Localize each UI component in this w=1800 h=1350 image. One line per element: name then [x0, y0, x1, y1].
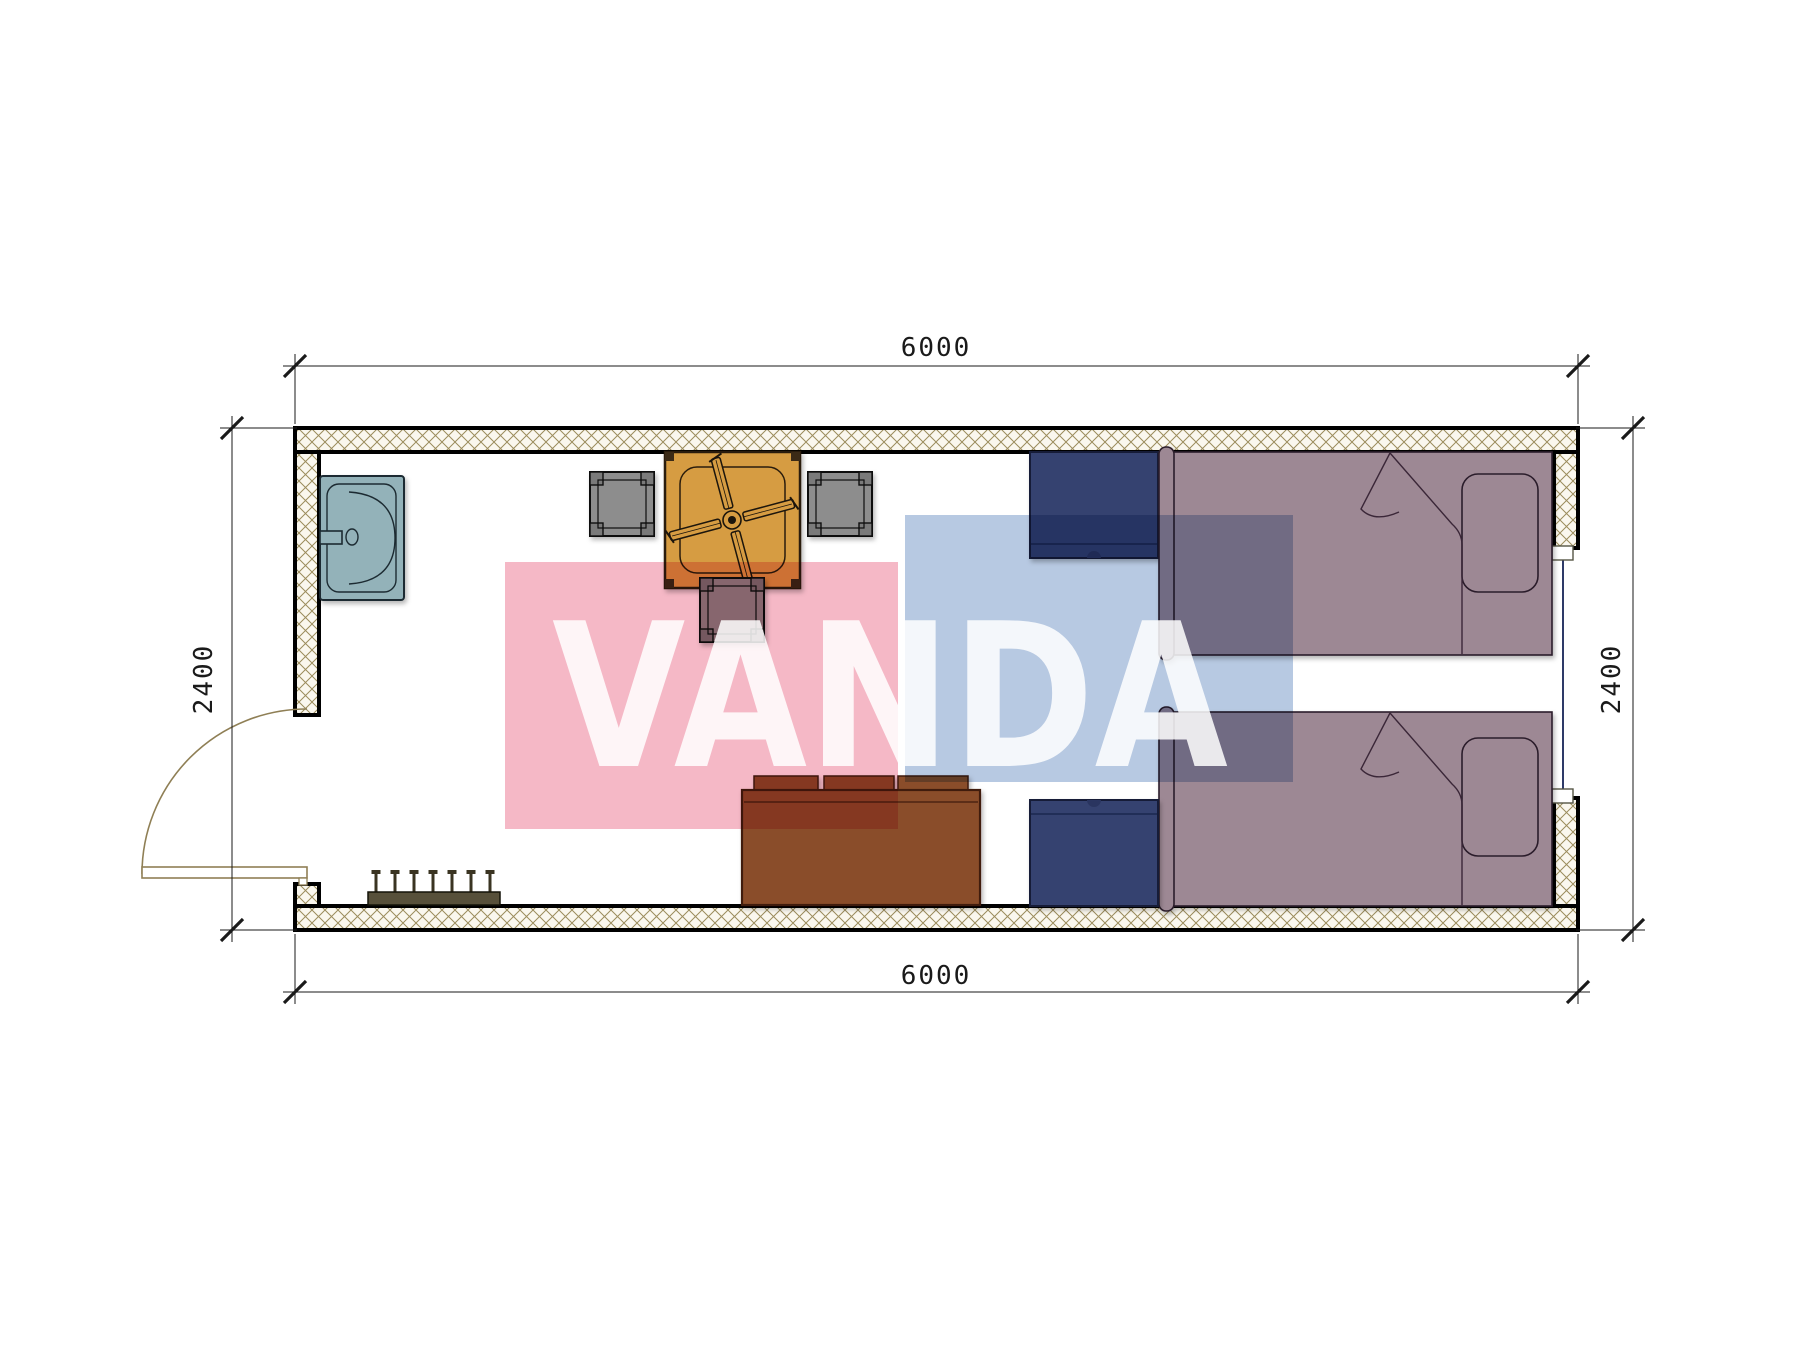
pillow — [1462, 738, 1538, 856]
window — [1552, 546, 1573, 803]
sink-faucet-icon — [320, 531, 342, 544]
nightstand-bottom — [1030, 800, 1158, 906]
window-frame-bottom — [1552, 789, 1573, 803]
coat-rack — [368, 870, 500, 905]
door-leaf — [142, 867, 307, 878]
door-swing-arc — [142, 709, 307, 874]
dimension-top: 6000 — [283, 333, 1590, 424]
watermark-text: VANDA — [552, 581, 1228, 814]
top-wall — [295, 428, 1578, 452]
coat-rack-bar — [368, 892, 500, 905]
dim-label-left: 2400 — [189, 644, 219, 715]
door-hinge — [299, 878, 307, 885]
left-wall — [295, 452, 319, 715]
dimension-bottom: 6000 — [283, 934, 1590, 1004]
watermark: VANDA — [505, 515, 1293, 829]
right-wall-upper — [1554, 452, 1578, 548]
door-jamb-stub — [295, 884, 319, 906]
floor-plan-page: VANDA 6000 6000 2400 2400 — [0, 0, 1800, 1350]
floor-plan-canvas: VANDA 6000 6000 2400 2400 — [0, 0, 1800, 1350]
dim-label-right: 2400 — [1597, 644, 1627, 715]
bottom-wall — [295, 906, 1578, 930]
right-wall-lower — [1554, 798, 1578, 906]
dimension-left: 2400 — [189, 416, 297, 942]
stool-left — [590, 472, 654, 536]
sink — [320, 476, 404, 600]
window-frame-top — [1552, 546, 1573, 560]
door — [142, 709, 307, 885]
stool-right — [808, 472, 872, 536]
dimension-right: 2400 — [1576, 416, 1645, 942]
dim-label-top: 6000 — [901, 333, 972, 363]
pillow — [1462, 474, 1538, 592]
dim-label-bottom: 6000 — [901, 961, 972, 991]
